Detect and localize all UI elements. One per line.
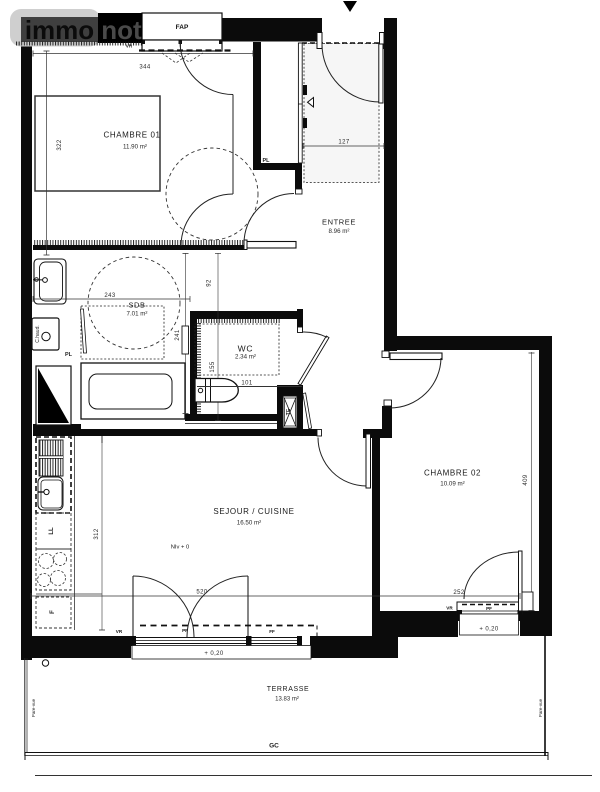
svg-text:immo: immo: [25, 15, 94, 45]
svg-text:7.01 m²: 7.01 m²: [127, 311, 148, 318]
svg-text:LL: LL: [49, 527, 55, 535]
svg-text:92: 92: [207, 279, 213, 287]
svg-text:PF: PF: [486, 606, 492, 611]
svg-text:322: 322: [57, 139, 63, 150]
svg-text:344: 344: [139, 65, 150, 71]
svg-text:CHAMBRE 01: CHAMBRE 01: [103, 131, 160, 140]
svg-text:GC: GC: [269, 743, 279, 750]
svg-text:409: 409: [523, 474, 529, 485]
svg-text:SDB: SDB: [129, 301, 146, 310]
svg-text:101: 101: [241, 381, 252, 387]
svg-text:PL: PL: [65, 352, 73, 358]
svg-text:312: 312: [94, 528, 100, 539]
svg-text:TE: TE: [286, 408, 292, 415]
svg-text:VR: VR: [116, 629, 123, 634]
svg-text:PL: PL: [262, 158, 270, 164]
svg-text:+ 0,20: + 0,20: [479, 627, 499, 633]
svg-text:16.50 m²: 16.50 m²: [237, 520, 261, 527]
svg-text:155: 155: [210, 361, 216, 372]
svg-text:2.34 m²: 2.34 m²: [235, 354, 256, 361]
svg-text:127: 127: [338, 140, 349, 146]
svg-text:not: not: [101, 15, 142, 45]
svg-text:FAP: FAP: [176, 24, 189, 31]
svg-text:NIv + 0: NIv + 0: [171, 545, 190, 551]
svg-text:11.90 m²: 11.90 m²: [123, 144, 147, 151]
svg-text:13.83 m²: 13.83 m²: [275, 697, 299, 703]
svg-text:CHAMBRE 02: CHAMBRE 02: [424, 469, 481, 478]
svg-text:241: 241: [175, 329, 181, 340]
svg-text:+ 0,20: + 0,20: [204, 651, 224, 657]
svg-text:TERRASSE: TERRASSE: [267, 686, 310, 693]
svg-text:10.09 m²: 10.09 m²: [440, 481, 464, 488]
svg-text:F: F: [50, 610, 56, 614]
svg-text:Pare-vue: Pare-vue: [31, 698, 36, 717]
svg-text:8.96 m²: 8.96 m²: [329, 228, 350, 235]
svg-text:SEJOUR / CUISINE: SEJOUR / CUISINE: [213, 507, 294, 516]
svg-text:Pare-vue: Pare-vue: [538, 698, 543, 717]
svg-text:FF: FF: [269, 629, 275, 634]
svg-text:243: 243: [104, 293, 115, 299]
svg-text:252: 252: [453, 590, 464, 596]
svg-text:ENTREE: ENTREE: [322, 218, 356, 227]
svg-text:PF: PF: [182, 628, 188, 633]
svg-text:VR: VR: [446, 606, 453, 611]
svg-text:C.haud.: C.haud.: [35, 325, 41, 343]
svg-text:WC: WC: [238, 344, 254, 354]
